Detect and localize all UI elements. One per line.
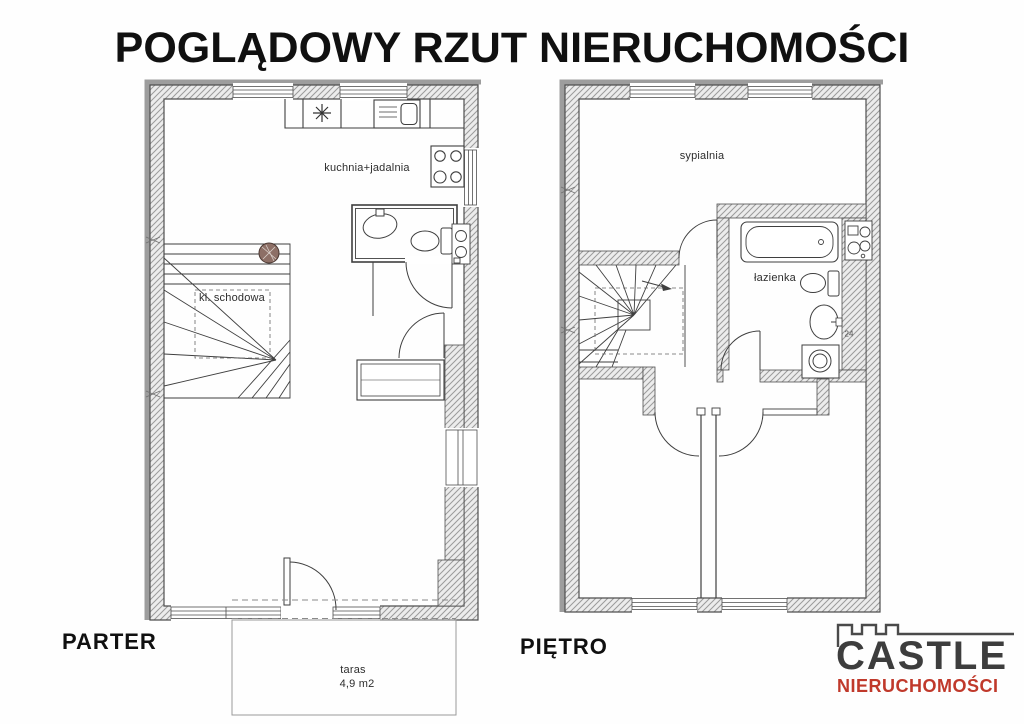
kitchen-sink xyxy=(374,100,420,128)
terrace-door xyxy=(284,558,336,610)
logo-subtitle: NIERUCHOMOŚCI xyxy=(837,677,999,695)
parter-wall-ring xyxy=(150,85,478,620)
hall-partition xyxy=(697,408,720,598)
floor-plan-document: POGLĄDOWY RZUT NIERUCHOMOŚCI xyxy=(0,0,1024,724)
room-label-kitchen-dining: kuchnia+jadalnia xyxy=(324,162,409,174)
boiler-unit-pietro xyxy=(845,221,872,260)
wc-toilet xyxy=(411,228,452,254)
logo-name: CASTLE xyxy=(836,636,1008,676)
agency-logo: CASTLE NIERUCHOMOŚCI xyxy=(836,616,1022,722)
closet xyxy=(357,360,444,400)
stair-column xyxy=(259,243,279,263)
room-label-terrace: taras xyxy=(340,664,365,676)
stove xyxy=(431,146,464,187)
room-label-bedroom: sypialnia xyxy=(680,150,725,162)
hall-right-door-arc xyxy=(719,412,763,456)
hall-thin-wall xyxy=(763,409,817,415)
floor-label-parter: PARTER xyxy=(62,629,157,655)
living-room-door xyxy=(399,313,444,358)
washbasin xyxy=(810,305,842,339)
bedroom-door xyxy=(679,220,717,258)
staircase-parter xyxy=(164,244,290,398)
parter-wall-corner-block xyxy=(438,560,464,606)
toilet xyxy=(801,271,840,296)
terrace-area-value: 4,9 m2 xyxy=(340,678,375,690)
boiler-unit-parter xyxy=(452,224,470,264)
hall-left-door-arc xyxy=(655,412,699,456)
wall-dimension-label: 24 xyxy=(845,330,854,339)
floor-label-pietro: PIĘTRO xyxy=(520,634,608,660)
bathtub xyxy=(741,222,838,262)
staircase-pietro xyxy=(579,265,683,367)
parter-plan xyxy=(146,82,481,715)
room-label-staircase: kl. schodowa xyxy=(199,292,265,304)
cooker-hob-symbol xyxy=(313,104,331,122)
wc-washbasin xyxy=(361,209,399,241)
room-label-bathroom: łazienka xyxy=(754,272,796,284)
washing-machine xyxy=(802,345,839,378)
